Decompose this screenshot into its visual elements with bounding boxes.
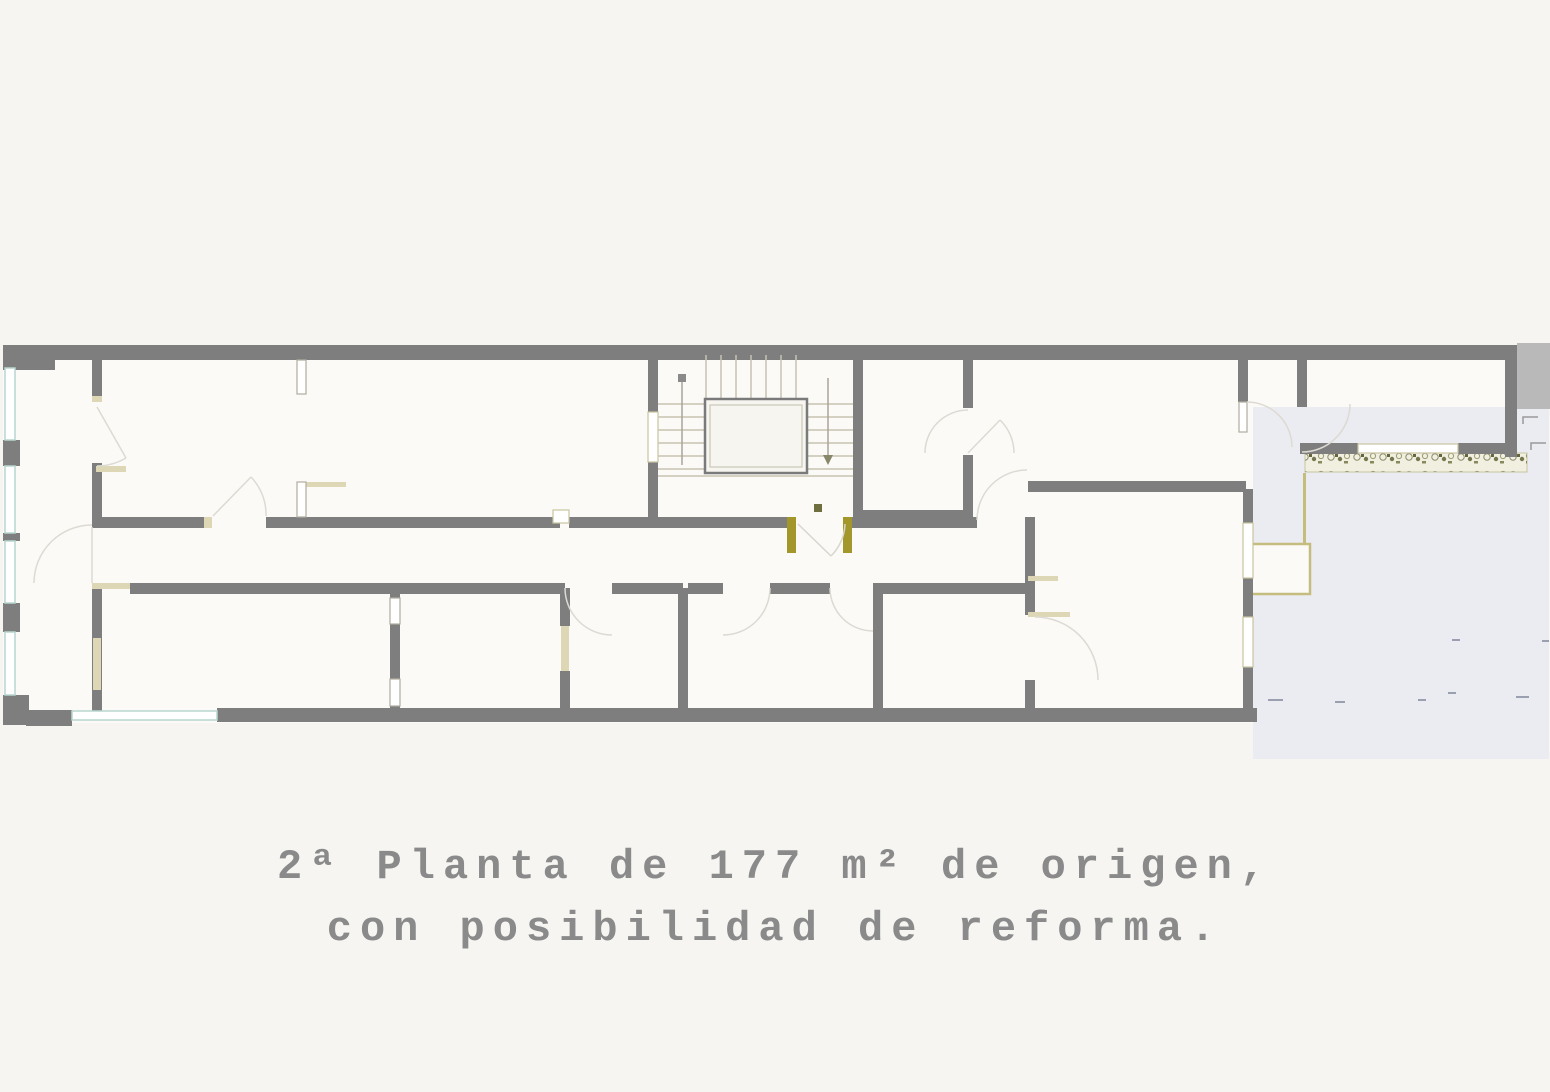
window-t5-south [1358, 444, 1458, 453]
caption: 2ª Planta de 177 m² de origen, con posib… [0, 836, 1550, 960]
leaf-closet-door [1239, 402, 1247, 432]
entrance-jamb-right [843, 517, 852, 553]
jamb-vestibule-2 [1028, 612, 1070, 617]
wall-corridor-upper-4 [852, 517, 977, 528]
wall-closet-west [1238, 357, 1248, 402]
jamb-partition-sill [306, 482, 346, 487]
wall-bottomleft-corner [3, 695, 29, 725]
wall-topleft-corner [3, 345, 55, 370]
terrace-planter-box [1248, 544, 1310, 594]
leaf-partition-bottom [297, 482, 306, 517]
main-body-floor [3, 345, 1257, 723]
floor-plan-page: 2ª Planta de 177 m² de origen, con posib… [0, 0, 1550, 1092]
wall-corridor-upper-1 [92, 517, 212, 528]
wall-left-pier-2 [3, 603, 20, 632]
stair-flight-left [658, 398, 704, 476]
wall-topright [1505, 345, 1517, 457]
wall-vestibule-2 [1025, 580, 1035, 615]
leaf-r1-r2-door-a [390, 598, 400, 624]
wall-r1-r2-b [390, 624, 400, 679]
window-stairwell [648, 412, 658, 462]
wall-corridor-upper-3 [569, 517, 787, 528]
wall-t3-t4-top [963, 357, 973, 408]
wall-t5-south-right [1458, 443, 1513, 454]
wall-stair-east [853, 357, 863, 518]
wall-t3-t4-bot [963, 455, 973, 511]
jamb-t1-door [204, 517, 212, 528]
leaf-partition-top [297, 360, 306, 394]
window-east-2 [1243, 617, 1253, 667]
wall-gallery-top [92, 357, 102, 402]
wall-corridor-lower-1 [130, 583, 395, 594]
wall-corridor-lower-6 [873, 583, 1025, 594]
planter-plants [1305, 453, 1527, 472]
neighbor-building-block [1517, 343, 1550, 409]
caption-line-2: con posibilidad de reforma. [0, 898, 1550, 960]
caption-line-1: 2ª Planta de 177 m² de origen, [0, 836, 1550, 898]
window-west-2 [5, 466, 15, 533]
wall-stair-west-top [648, 357, 658, 412]
wall-vestibule-3 [1025, 680, 1035, 715]
wall-east-1 [1243, 489, 1253, 523]
wall-corridor-lower-3 [612, 583, 683, 594]
stair-core-box [705, 399, 807, 473]
stair-arrow-up-head [678, 374, 686, 382]
wall-r4-r5 [873, 594, 883, 710]
wall-corridor-lower-4 [688, 583, 723, 594]
wall-corridor-upper-2 [266, 517, 560, 528]
jamb-vestibule-1 [1028, 576, 1058, 581]
leaf-r2-r3-door [561, 626, 569, 671]
window-west-1 [5, 368, 15, 440]
wall-r1-r2-c [390, 706, 400, 714]
stair-flight-top [705, 355, 807, 399]
jamb-living-door [92, 583, 130, 589]
wall-r3-r4 [678, 588, 688, 710]
wall-east-3 [1243, 667, 1253, 722]
wall-closet-east [1297, 357, 1307, 407]
wall-corridor-lower-2 [395, 583, 565, 594]
wall-r2-r3-b [560, 671, 570, 710]
leaf-living-gallery-door [93, 638, 101, 690]
window-east-1 [1243, 523, 1253, 578]
wall-left-mullion [3, 533, 20, 541]
jamb-gallery-door-top [92, 396, 102, 402]
window-west-3 [5, 541, 15, 603]
jamb-gallery-door-sill [96, 466, 126, 472]
entrance-jamb-left [787, 517, 796, 553]
planter-band [1305, 453, 1527, 472]
window-corridor-transom [553, 510, 569, 523]
leaf-r1-r2-door-b [390, 679, 400, 706]
wall-r1-r2-a [390, 588, 400, 598]
wall-east-2 [1243, 578, 1253, 617]
landing-mark-dot [814, 504, 822, 512]
wall-bottom-left-stub [26, 710, 72, 726]
wall-corridor-lower-5 [770, 583, 830, 594]
window-west-4 [5, 632, 15, 695]
terrace-rail-line [1303, 473, 1306, 544]
wall-vestibule-1 [1025, 517, 1035, 580]
wall-bottom [217, 708, 1257, 722]
wall-left-pier-1 [3, 440, 20, 466]
stair-flight-right [807, 398, 853, 476]
wall-t4-south [1028, 481, 1246, 492]
window-south-band [72, 711, 217, 720]
